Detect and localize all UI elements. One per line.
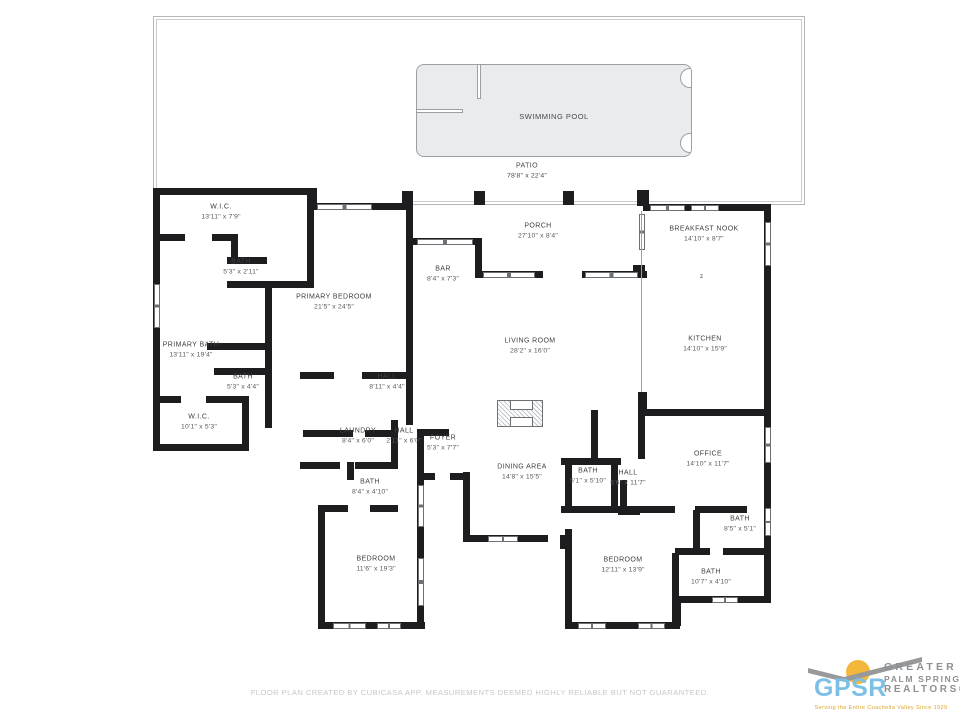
room-dimensions: 8'4" x 7'3"	[427, 275, 459, 285]
wall	[591, 410, 598, 458]
swimming-pool: SWIMMING POOL	[416, 64, 692, 157]
room-name: BATH	[724, 514, 756, 525]
room-label: DINING AREA14'8" x 15'5"	[497, 462, 547, 483]
wall	[450, 473, 464, 480]
window	[483, 272, 535, 278]
fireplace-opening-top	[510, 400, 533, 410]
wall	[227, 257, 267, 264]
room-label: BAR8'4" x 7'3"	[427, 264, 459, 285]
room-label: KITCHEN14'10" x 15'9"	[683, 334, 727, 355]
window	[650, 205, 685, 211]
room-dimensions: 14'10" x 15'9"	[683, 345, 727, 355]
wall	[618, 508, 640, 515]
wall	[153, 188, 317, 195]
wall	[362, 372, 412, 379]
wall	[153, 444, 249, 451]
open-boundary-line	[641, 211, 642, 392]
wall	[214, 368, 272, 375]
room-name: BEDROOM	[601, 555, 644, 566]
room-name: PORCH	[518, 221, 558, 232]
room-dimensions: 10'7" x 4'10"	[691, 578, 731, 588]
window	[765, 427, 771, 463]
wall	[300, 372, 334, 379]
fireplace-opening-bottom	[510, 417, 533, 427]
left-wing-floor	[154, 189, 412, 450]
wall	[347, 462, 354, 480]
wall	[370, 505, 398, 512]
window	[317, 204, 372, 210]
wall	[637, 190, 649, 206]
room-dimensions: 14'10" x 8'7"	[669, 235, 738, 245]
window	[418, 485, 424, 527]
wall	[565, 529, 572, 628]
wall	[723, 548, 767, 555]
wall	[265, 288, 272, 428]
wall	[391, 420, 398, 468]
logo-line-greater: GREATER	[884, 662, 960, 673]
room-label: BEDROOM11'6" x 19'3"	[356, 554, 395, 575]
wall	[563, 191, 574, 205]
wall	[423, 473, 435, 480]
window	[639, 214, 645, 250]
window	[585, 272, 638, 278]
wall	[355, 462, 398, 469]
window	[333, 623, 366, 629]
logo-acronym: GPSR	[814, 676, 887, 701]
swimming-pool-label: SWIMMING POOL	[417, 112, 691, 121]
room-dimensions: 14'8" x 15'5"	[497, 473, 547, 483]
room-name: OFFICE	[686, 449, 729, 460]
wall	[638, 409, 645, 459]
gpsr-logo: GPSR GREATER PALM SPRINGS REALTORS® Serv…	[806, 655, 956, 715]
window	[377, 623, 401, 629]
room-name: DINING AREA	[497, 462, 547, 473]
wall	[672, 553, 679, 598]
wall	[207, 343, 272, 350]
wall	[402, 191, 413, 205]
wall	[227, 281, 314, 288]
room-label: BEDROOM12'11" x 13'9"	[601, 555, 644, 576]
wall	[565, 458, 572, 512]
room-name: BREAKFAST NOOK	[669, 224, 738, 235]
room-label: BATH5'1" x 5'10"	[570, 466, 606, 487]
room-dimensions: 5'1" x 5'10"	[570, 477, 606, 487]
fireplace	[497, 400, 543, 427]
wall	[300, 462, 340, 469]
pool-notch-top	[680, 68, 692, 88]
room-dimensions: 8'5" x 5'1"	[724, 525, 756, 535]
wall	[638, 409, 771, 416]
wall	[463, 472, 470, 542]
room-label: LIVING ROOM28'2" x 16'0"	[504, 336, 555, 357]
window	[418, 558, 424, 606]
room-dimensions: 12'11" x 13'9"	[601, 566, 644, 576]
window	[765, 508, 771, 536]
wall	[406, 203, 413, 425]
room-label: OFFICE14'10" x 11'7"	[686, 449, 729, 470]
floor-plan-canvas: SWIMMING POOL PATIO 78'8" x 22'4" z FLOO…	[0, 0, 960, 720]
room-label: BATH10'7" x 4'10"	[691, 567, 731, 588]
window	[765, 222, 771, 266]
room-dimensions: 14'10" x 11'7"	[686, 460, 729, 470]
wall	[307, 188, 314, 288]
window	[578, 623, 606, 629]
wall	[153, 396, 181, 403]
window	[691, 205, 719, 211]
room-name: LIVING ROOM	[504, 336, 555, 347]
wall	[675, 548, 710, 555]
room-dimensions: 8'4" x 4'10"	[352, 488, 388, 498]
logo-tagline: Serving the Entire Coachella Valley Sinc…	[806, 705, 956, 711]
room-name: BATH	[691, 567, 731, 578]
wall	[695, 506, 747, 513]
wall	[153, 234, 185, 241]
wall	[672, 596, 681, 626]
window	[712, 597, 738, 603]
room-name: BEDROOM	[356, 554, 395, 565]
wall	[474, 191, 485, 205]
room-name: BATH	[352, 477, 388, 488]
window	[638, 623, 665, 629]
room-name: KITCHEN	[683, 334, 727, 345]
fixture-mark: z	[700, 274, 703, 280]
room-label: BATH8'4" x 4'10"	[352, 477, 388, 498]
wall	[242, 398, 249, 451]
room-dimensions: 27'10" x 8'4"	[518, 232, 558, 242]
wall	[318, 505, 325, 628]
room-label: BATH8'5" x 5'1"	[724, 514, 756, 535]
window	[488, 536, 518, 542]
window	[154, 284, 160, 328]
room-dimensions: 28'2" x 16'0"	[504, 347, 555, 357]
logo-line-palm-springs: PALM SPRINGS	[884, 675, 960, 684]
pool-notch-bottom	[680, 133, 692, 153]
room-label: PORCH27'10" x 8'4"	[518, 221, 558, 242]
room-name: BAR	[427, 264, 459, 275]
wall	[303, 430, 353, 437]
logo-line-realtors: REALTORS®	[884, 685, 960, 695]
wall	[206, 396, 249, 403]
room-dimensions: 5'3" x 7'7"	[427, 444, 459, 454]
room-name: BATH	[570, 466, 606, 477]
room-label: BREAKFAST NOOK14'10" x 8'7"	[669, 224, 738, 245]
room-dimensions: 11'6" x 19'3"	[356, 565, 395, 575]
pool-step-line-vertical	[477, 64, 481, 99]
window	[417, 239, 473, 245]
logo-name: GREATER PALM SPRINGS REALTORS®	[884, 662, 960, 695]
